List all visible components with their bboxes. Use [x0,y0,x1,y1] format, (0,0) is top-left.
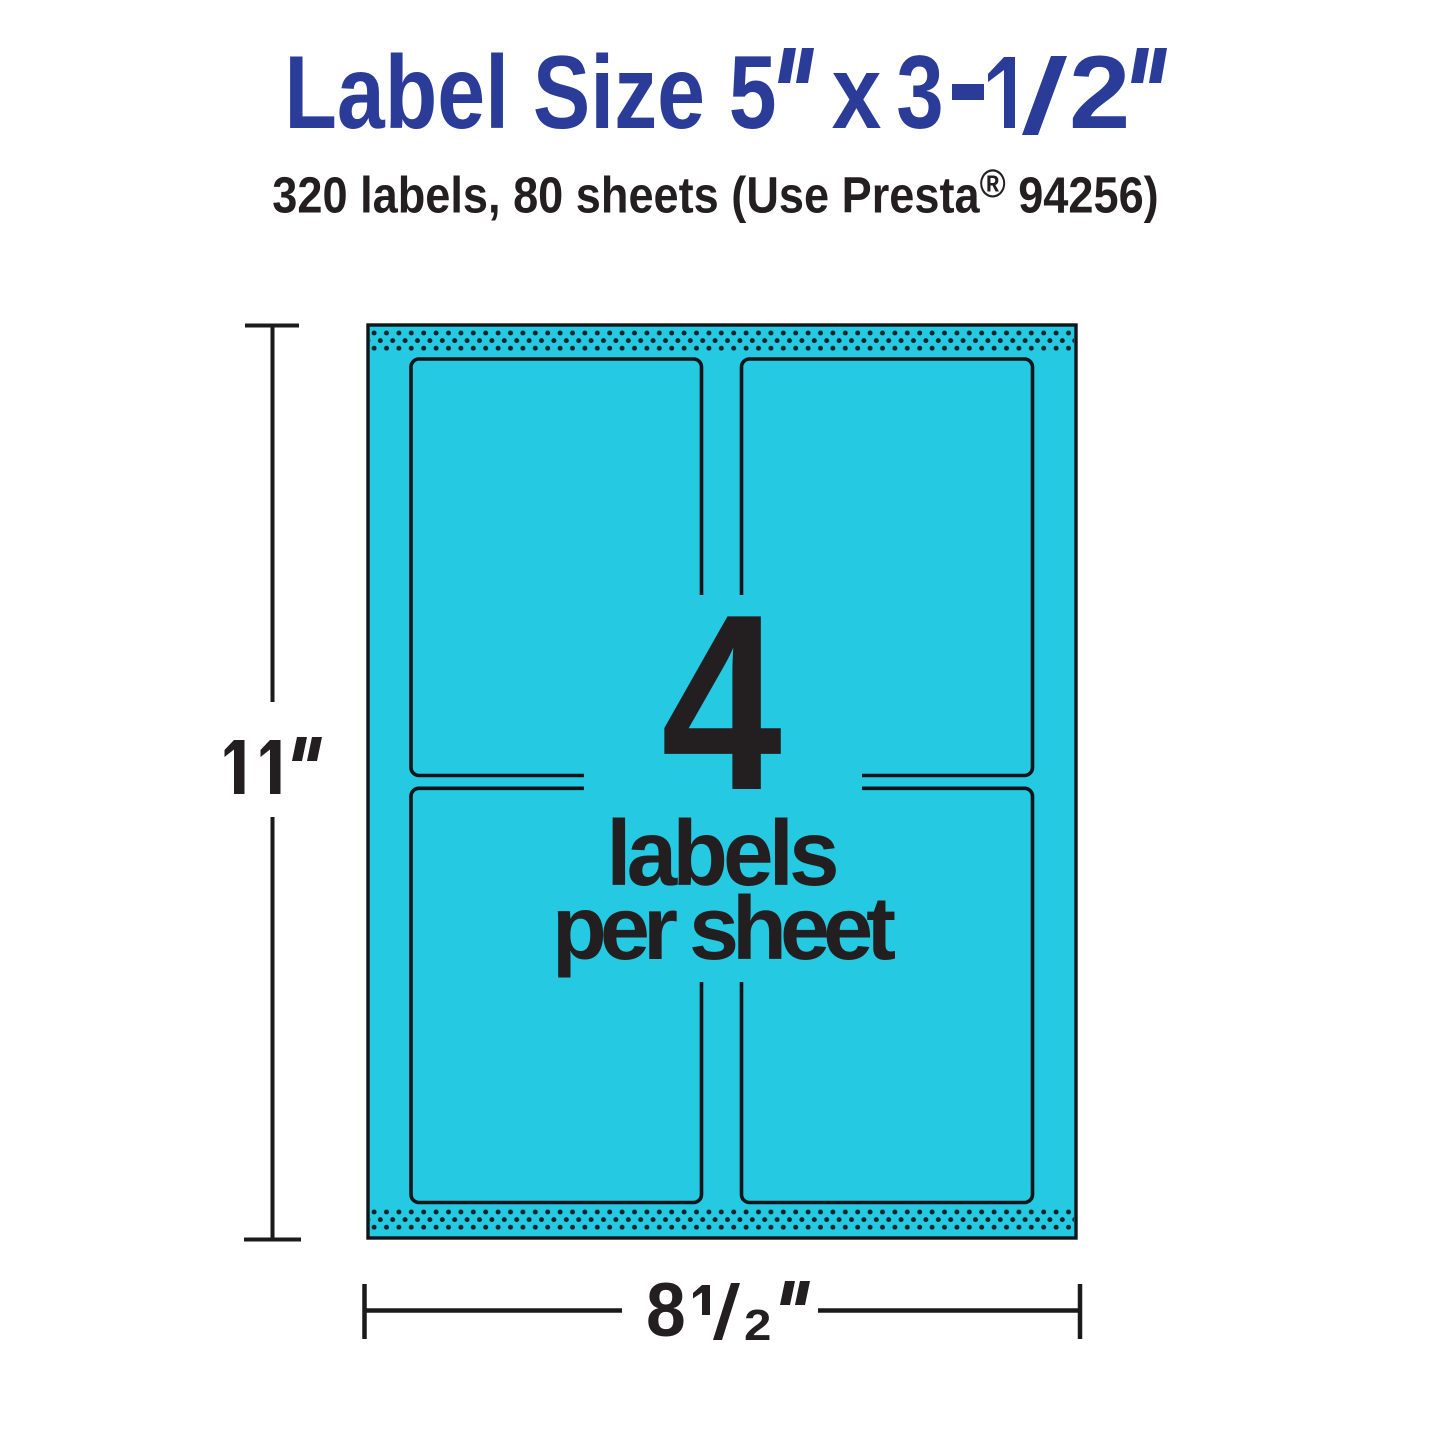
svg-text:320 labels, 80 sheets (Use Pre: 320 labels, 80 sheets (Use Presta® 94256… [272,162,1158,224]
svg-text:8: 8 [646,1267,686,1353]
svg-text:2: 2 [744,1300,771,1349]
svg-text:Label Size 5: Label Size 5 [284,35,776,151]
svg-text:2: 2 [1069,34,1130,150]
svg-text:4: 4 [661,561,782,842]
svg-text:x: x [832,34,882,151]
svg-text:per sheet: per sheet [552,879,895,979]
svg-text:3: 3 [896,35,943,151]
